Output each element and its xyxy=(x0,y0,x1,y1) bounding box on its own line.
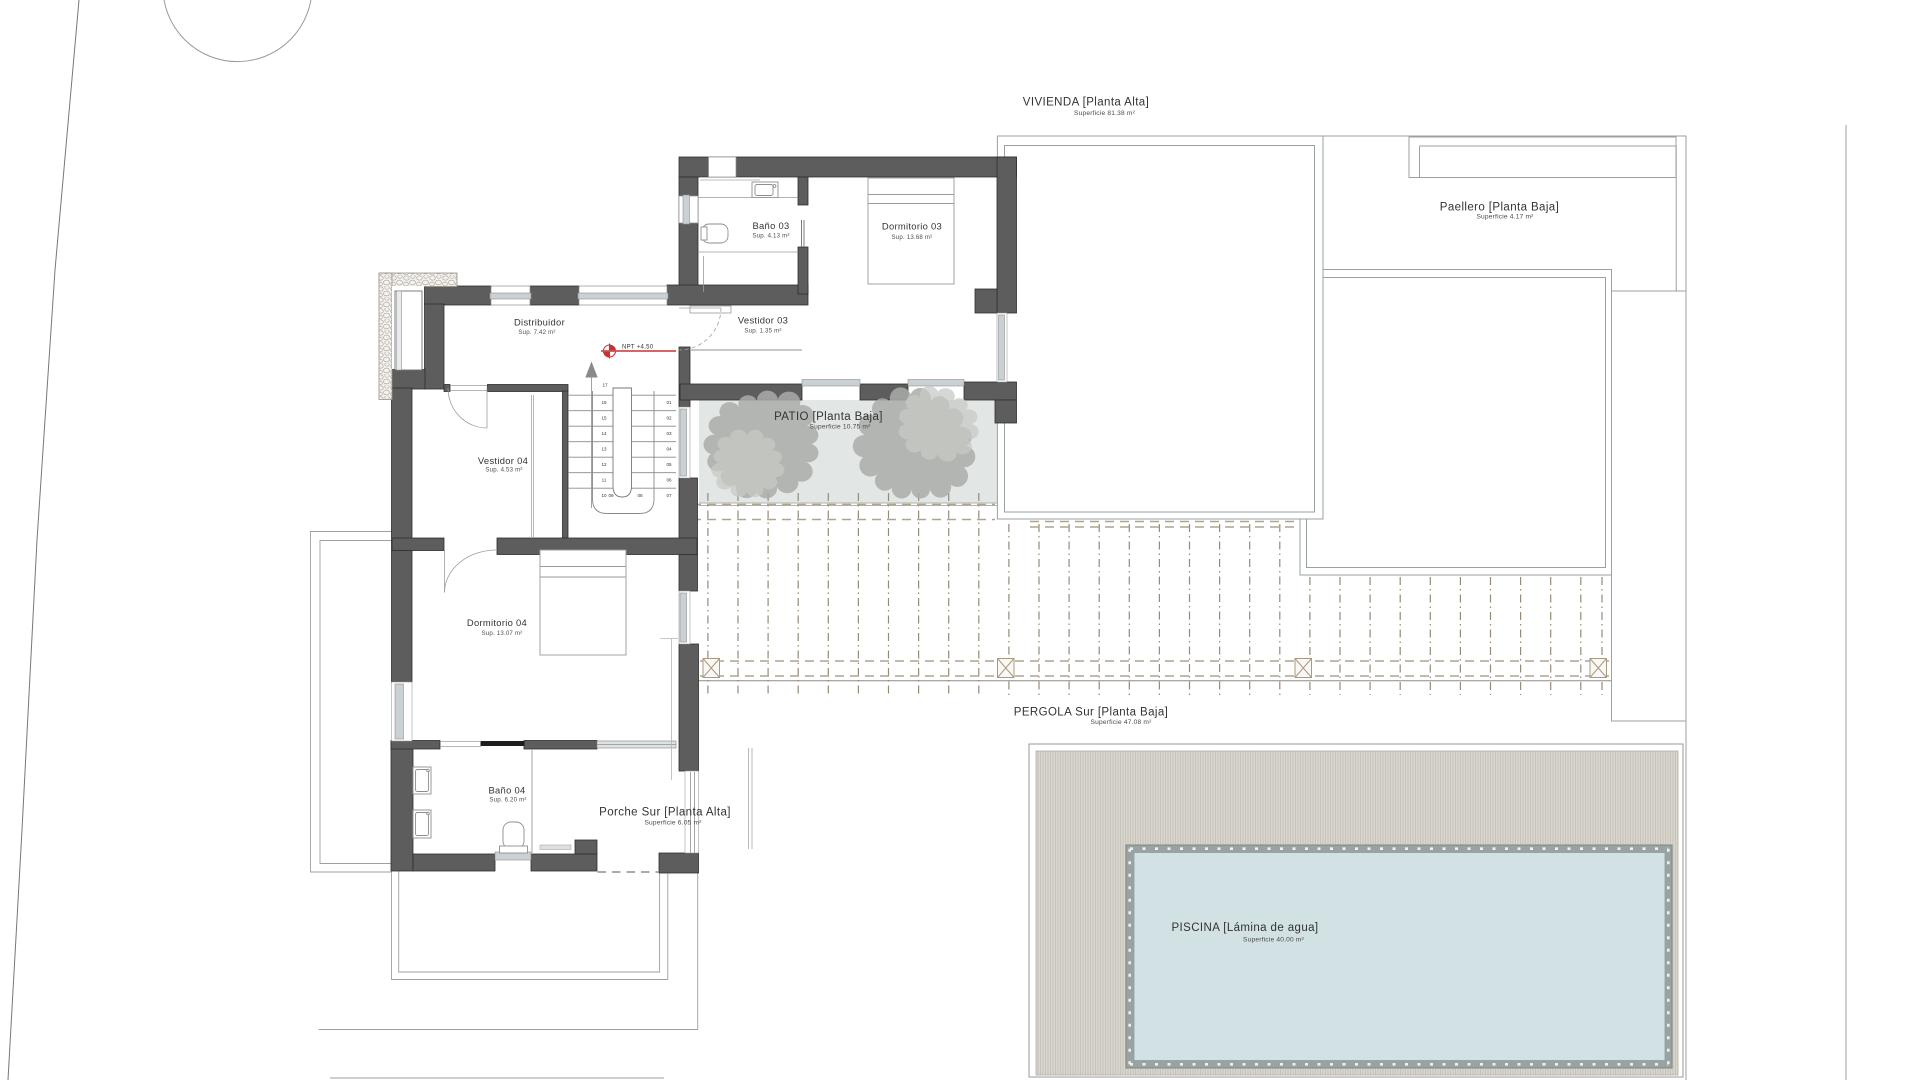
svg-text:10: 10 xyxy=(601,493,607,498)
svg-text:08: 08 xyxy=(637,493,643,498)
svg-text:Sup. 4.53 m²: Sup. 4.53 m² xyxy=(485,467,522,474)
svg-text:07: 07 xyxy=(666,493,672,498)
svg-text:06: 06 xyxy=(666,478,672,483)
svg-text:11: 11 xyxy=(602,478,607,483)
svg-text:Sup. 13.07 m²: Sup. 13.07 m² xyxy=(482,630,523,637)
svg-text:PISCINA [Lámina de agua]: PISCINA [Lámina de agua] xyxy=(1171,922,1318,934)
svg-text:Porche Sur [Planta Alta]: Porche Sur [Planta Alta] xyxy=(599,807,731,819)
svg-text:02: 02 xyxy=(666,416,672,421)
svg-text:Superficie 4.17 m²: Superficie 4.17 m² xyxy=(1476,214,1534,221)
svg-text:16: 16 xyxy=(601,400,607,405)
svg-text:Superficie 40.00 m²: Superficie 40.00 m² xyxy=(1243,937,1305,944)
svg-text:17: 17 xyxy=(602,383,608,388)
svg-text:Sup. 6.20 m²: Sup. 6.20 m² xyxy=(489,797,526,804)
svg-text:12: 12 xyxy=(601,462,607,467)
svg-text:Superficie 47.08 m²: Superficie 47.08 m² xyxy=(1091,719,1153,726)
svg-text:03: 03 xyxy=(666,431,672,436)
svg-text:Superficie 81.38 m²: Superficie 81.38 m² xyxy=(1074,110,1136,117)
svg-text:Sup. 7.42 m²: Sup. 7.42 m² xyxy=(518,329,555,336)
svg-text:13: 13 xyxy=(601,447,607,452)
svg-text:14: 14 xyxy=(601,431,607,436)
svg-text:PATIO [Planta Baja]: PATIO [Planta Baja] xyxy=(774,411,883,423)
svg-text:05: 05 xyxy=(666,462,672,467)
svg-text:Distribuidor: Distribuidor xyxy=(514,317,565,328)
svg-text:NPT +4.50: NPT +4.50 xyxy=(622,345,654,351)
svg-text:Sup. 1.35 m²: Sup. 1.35 m² xyxy=(744,328,781,335)
svg-text:Vestidor 03: Vestidor 03 xyxy=(738,315,788,326)
svg-text:Baño 04: Baño 04 xyxy=(488,785,525,796)
svg-text:Sup. 13.68 m²: Sup. 13.68 m² xyxy=(892,234,933,241)
svg-text:PERGOLA Sur [Planta Baja]: PERGOLA Sur [Planta Baja] xyxy=(1014,707,1168,719)
svg-text:Superficie 10.75 m²: Superficie 10.75 m² xyxy=(810,424,872,431)
svg-text:Vestidor 04: Vestidor 04 xyxy=(478,455,528,466)
svg-text:04: 04 xyxy=(666,447,672,452)
svg-text:15: 15 xyxy=(601,416,607,421)
svg-text:Dormitorio 03: Dormitorio 03 xyxy=(882,221,942,232)
svg-text:Baño 03: Baño 03 xyxy=(752,220,789,231)
svg-text:VIVIENDA [Planta Alta]: VIVIENDA [Planta Alta] xyxy=(1023,97,1149,109)
svg-text:Superficie 6.05 m²: Superficie 6.05 m² xyxy=(644,820,702,827)
svg-text:Dormitorio 04: Dormitorio 04 xyxy=(467,617,527,628)
svg-text:Paellero [Planta Baja]: Paellero [Planta Baja] xyxy=(1440,202,1559,214)
svg-text:01: 01 xyxy=(666,400,672,405)
svg-text:Sup. 4.13 m²: Sup. 4.13 m² xyxy=(752,233,789,240)
svg-text:09: 09 xyxy=(608,493,614,498)
